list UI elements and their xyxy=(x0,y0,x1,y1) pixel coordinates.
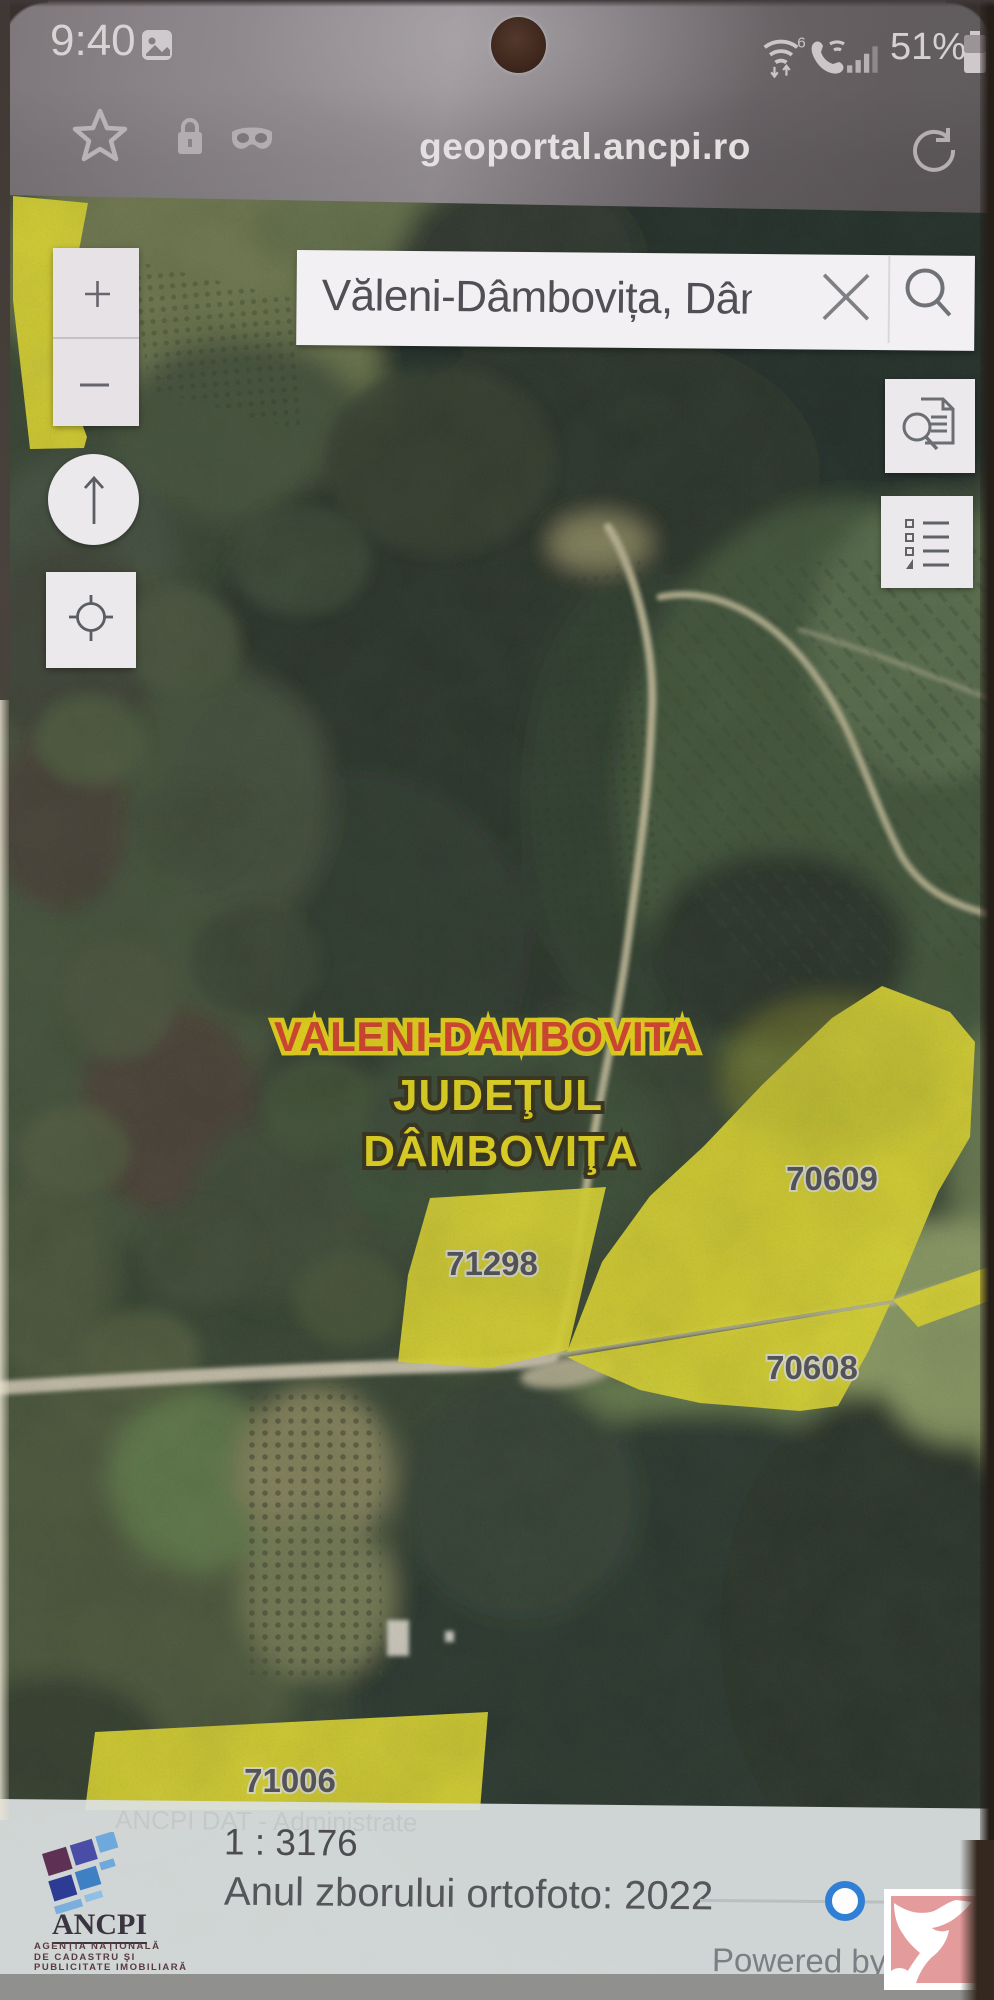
svg-text:6: 6 xyxy=(797,34,805,51)
